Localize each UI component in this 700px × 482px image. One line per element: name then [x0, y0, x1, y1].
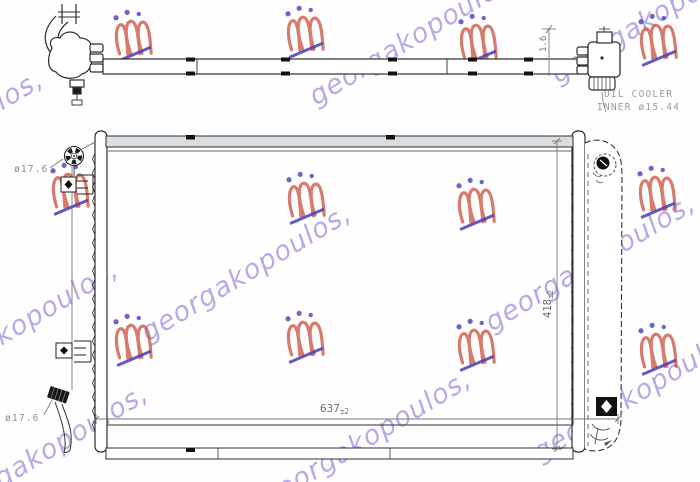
dim-width: [93, 414, 621, 424]
dim-outlet-diameter: ø17.6: [5, 413, 40, 424]
tank-end-cap: [49, 32, 92, 78]
radiator-technical-drawing: georgakopoulos, georgakopoulos, georgako…: [0, 0, 700, 482]
top-tank-bar: [103, 59, 578, 74]
georgakopoulos-logo: [279, 2, 325, 57]
georgakopoulos-logo: [107, 6, 153, 61]
watermark-script: georgakopoulos,: [0, 378, 154, 482]
top-view: 1.6 OIL COOLER INNER ø15.44: [45, 4, 680, 113]
georgakopoulos-logo: [279, 307, 325, 362]
dim-inlet-diameter: ø17.6: [14, 164, 49, 175]
bottom-header: [106, 448, 573, 459]
left-side-plate: [95, 131, 107, 452]
oil-cooler-label-line1: OIL COOLER: [604, 89, 673, 100]
watermark-script: georgakopoulos,: [256, 364, 477, 482]
drawing-canvas: georgakopoulos, georgakopoulos, georgako…: [0, 0, 700, 482]
radiator-core: [107, 147, 573, 425]
watermark-script: georgakopoulos,: [0, 64, 49, 214]
oil-cooler-label: OIL COOLER INNER ø15.44: [597, 89, 680, 113]
inlet-port: [50, 142, 95, 176]
watermark-script: georgakopoulos,: [546, 0, 700, 90]
top-header: [106, 136, 573, 147]
watermark-script: georgakopoulos,: [136, 198, 357, 348]
dim-width-label: 637±2: [320, 402, 349, 416]
georgakopoulos-logo: [450, 174, 496, 229]
bracket-lower-left: [56, 341, 91, 362]
mounting-bracket-bottom-right: [596, 397, 617, 416]
oil-cooler-label-line2: INNER ø15.44: [597, 102, 680, 113]
right-side-plate: [572, 131, 585, 452]
dim-thickness-label: 1.6: [539, 36, 549, 52]
inlet-assembly: [45, 4, 103, 105]
watermark-script: georgakopoulos,: [304, 0, 525, 112]
